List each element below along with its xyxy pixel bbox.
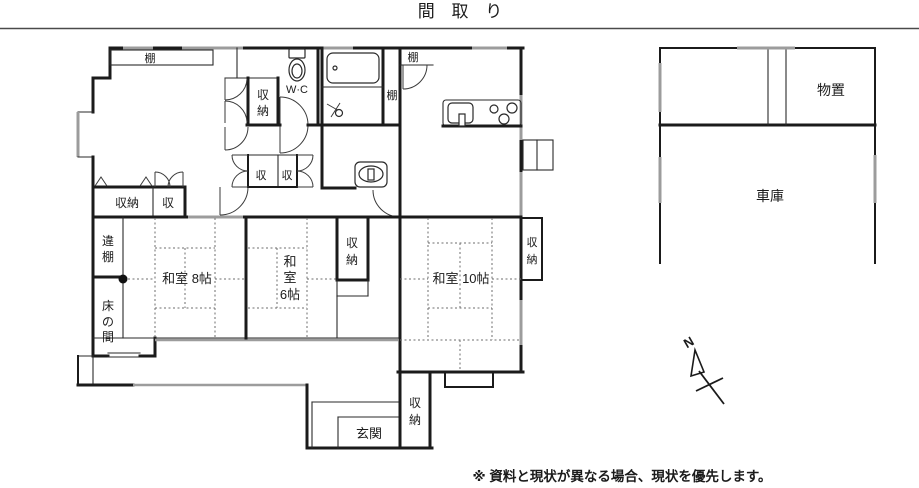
room-washitsu-8: 和室 8帖 [128, 218, 246, 338]
bathtub-icon [327, 53, 379, 83]
hall-closets: 収 収 [232, 155, 313, 187]
room-washitsu-6: 和 室 6帖 [248, 218, 337, 338]
double-door-icon [225, 78, 247, 123]
passage-door-icon [220, 187, 248, 215]
disclaimer-text: ※ 資料と現状が異なる場合、現状を優先します。 [472, 468, 771, 484]
shelf-label: 棚 [408, 50, 419, 64]
shelf-top-outline [110, 50, 213, 65]
exterior-step [78, 356, 133, 385]
entry-closet: 収 納 [400, 372, 430, 448]
tatami-rooms: 違 棚 床 の 間 和室 8帖 [93, 217, 400, 344]
room-label: 和室 8帖 [162, 271, 212, 286]
genkan-label: 玄関 [356, 426, 382, 441]
wc-door-icon [280, 97, 308, 153]
closet-label: 収 [282, 169, 293, 182]
wc-label: W·C [286, 84, 308, 96]
living-room: 棚 [110, 50, 213, 65]
double-door-icon [155, 172, 183, 187]
toilet-icon [289, 49, 305, 81]
kitchen-counter [443, 100, 521, 126]
closet-label: 収 [257, 88, 269, 102]
washroom [322, 125, 400, 217]
room-label: 和 [283, 254, 296, 269]
north-arrow-icon: N [681, 333, 724, 404]
floor-plan-page: 間 取 り [0, 0, 919, 488]
closet-label: 納 [257, 104, 269, 118]
east-wall [521, 48, 553, 217]
closet-label: 収 [162, 196, 174, 210]
closet-label: 納 [527, 253, 538, 266]
shelf-label: 棚 [145, 51, 156, 65]
closet-label: 収 [256, 169, 267, 182]
chigaidana-label: 棚 [102, 249, 114, 264]
closet-between-rooms: 収 納 [337, 217, 368, 296]
washbasin-icon [355, 162, 387, 187]
closet-east-of-10: 収 納 [523, 218, 542, 280]
tokonoma-alcove: 違 棚 床 の 間 [93, 234, 128, 344]
washroom-door-icon [373, 190, 400, 217]
room-label: 6帖 [280, 287, 300, 302]
north-label: N [681, 333, 697, 351]
tokonoma-label: の [102, 315, 114, 329]
closet-row: 収納 収 [93, 172, 248, 217]
folding-door-icon [95, 177, 152, 186]
room-label: 室 [283, 270, 296, 285]
shed-label: 物置 [817, 82, 845, 98]
room-washitsu-10: 和室 10帖 収 納 [398, 217, 542, 387]
garage-shed-block: 物置 車庫 [660, 48, 875, 263]
living-door-icon [225, 127, 248, 150]
kitchen-sink-icon [448, 103, 473, 126]
closet-label: 納 [409, 413, 421, 427]
double-door-icon [232, 155, 313, 187]
bay-box [523, 140, 553, 170]
tokonoma-label: 床 [102, 299, 114, 313]
closet-label: 納 [346, 253, 358, 267]
stove-burners-icon [490, 103, 517, 124]
bathroom: 棚 [322, 48, 398, 125]
tatami-lines [400, 218, 521, 371]
room-label: 和室 10帖 [432, 271, 489, 286]
porch-step [445, 372, 493, 387]
pillar-dot [119, 275, 128, 284]
entrance: 玄関 収 納 [338, 372, 430, 448]
garage-label: 車庫 [756, 188, 784, 204]
shelf-label: 棚 [387, 88, 398, 102]
header: 間 取 り [0, 2, 919, 29]
closet-label: 収 [409, 396, 421, 410]
kitchen-door-icon [403, 65, 427, 89]
floor-plan-drawing: 間 取 り [0, 0, 919, 488]
closet-label: 収 [527, 236, 538, 249]
closet-label: 収納 [115, 196, 139, 210]
wc-block: 収 納 W·C [225, 48, 318, 153]
shower-faucet-icon [327, 103, 343, 117]
kitchen: 棚 [400, 48, 521, 217]
closet-label: 収 [346, 236, 358, 250]
chigaidana-label: 違 [102, 234, 114, 248]
tokonoma-label: 間 [102, 330, 114, 344]
page-title: 間 取 り [418, 2, 508, 21]
